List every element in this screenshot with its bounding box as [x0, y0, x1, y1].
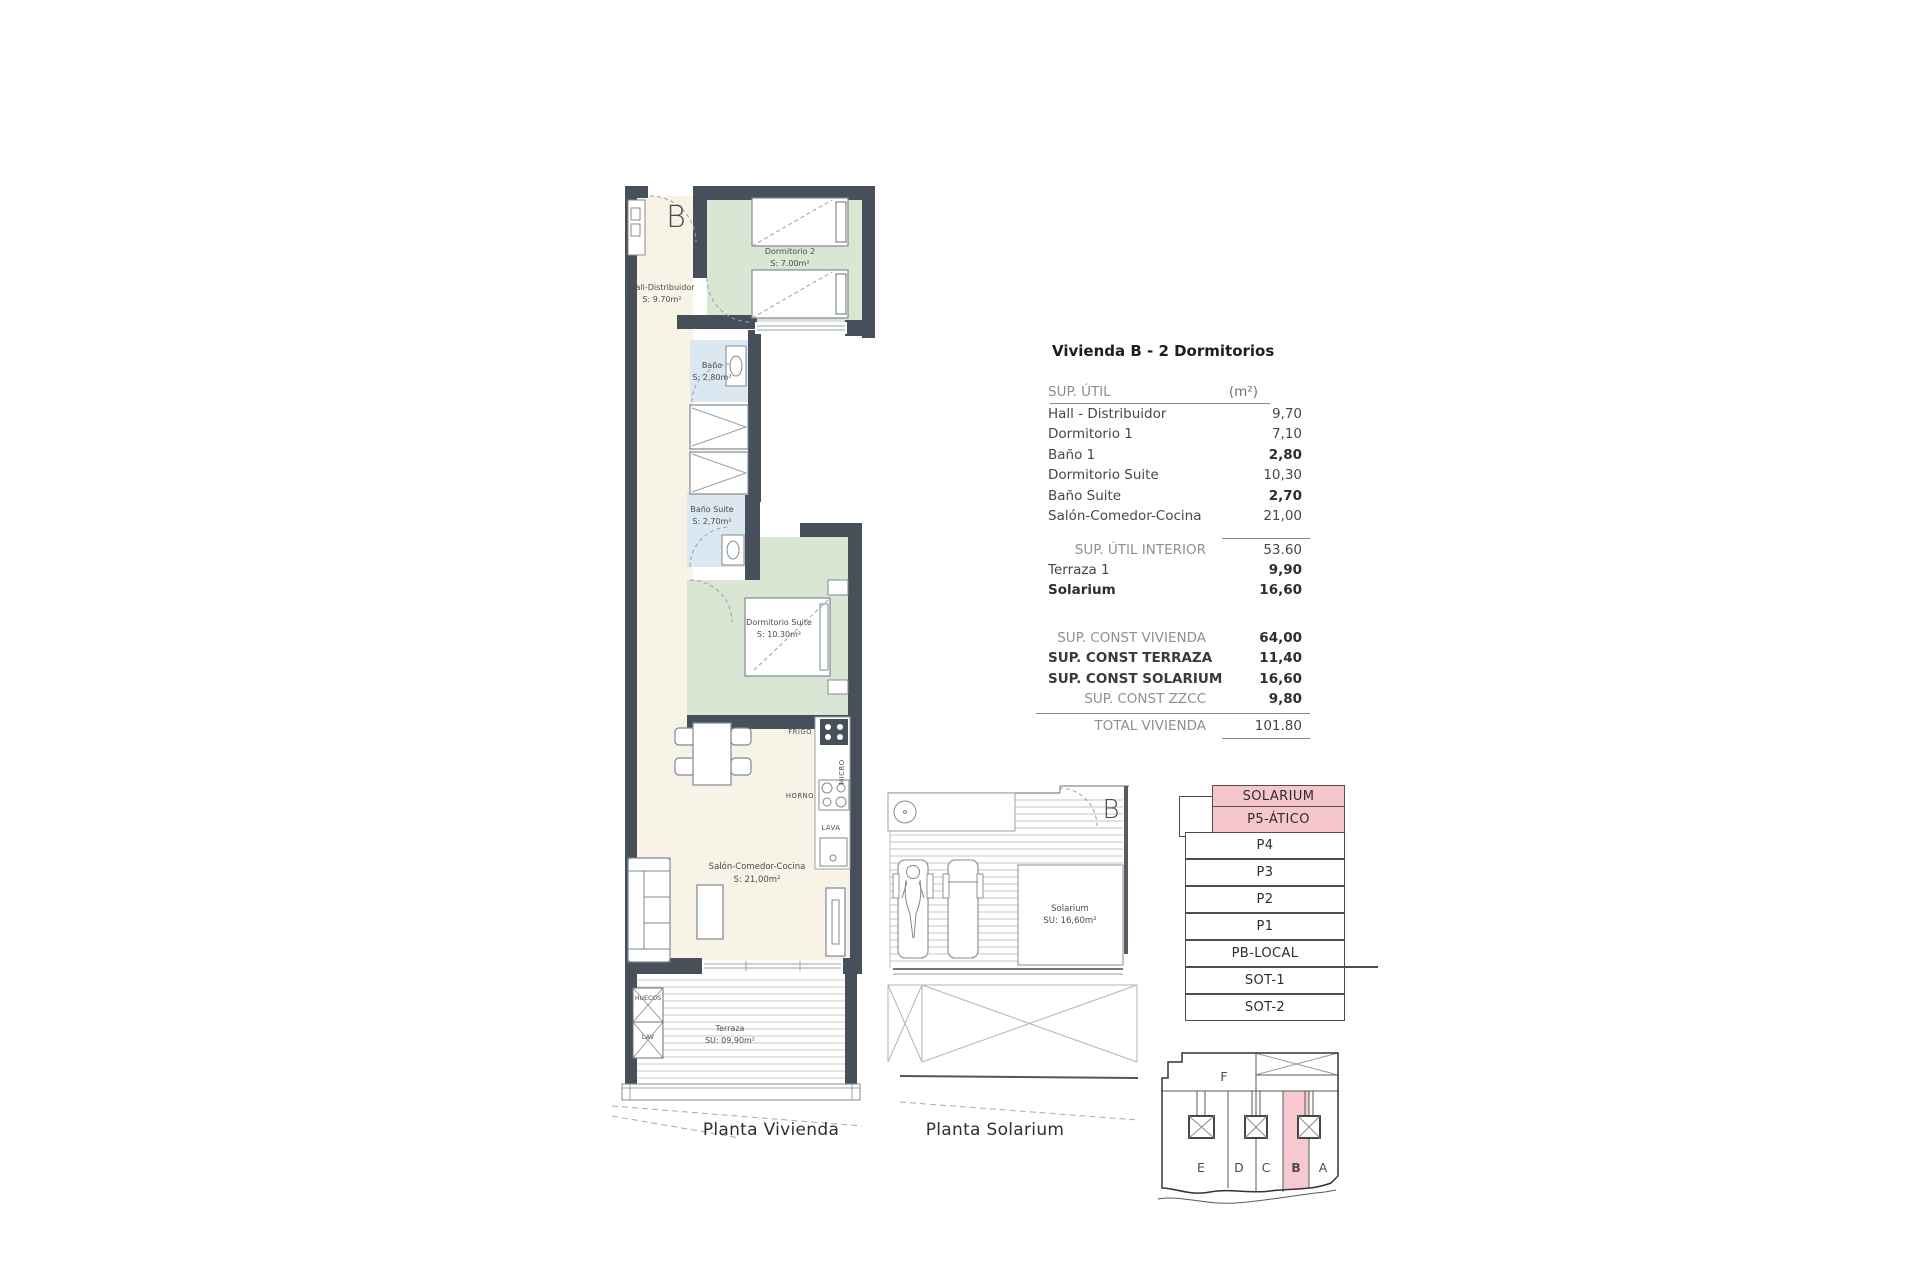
micro-label: MICRO	[838, 759, 846, 784]
stack-level-solarium: SOLARIUM	[1212, 785, 1345, 807]
stack-level-sot1: SOT-1	[1185, 967, 1345, 994]
bano-suite-area: S: 2,70m²	[692, 517, 731, 526]
area-table: Vivienda B - 2 Dormitorios SUP. ÚTIL (m²…	[1048, 340, 1310, 760]
tv-bench	[826, 888, 845, 956]
oven-label: HORNO	[786, 792, 814, 800]
washer-label: LAVA	[821, 824, 840, 832]
table-row: Dormitorio 1 7,10	[1048, 424, 1310, 444]
total-top-line	[1036, 713, 1310, 714]
total-underline	[1222, 738, 1310, 739]
table-header: SUP. ÚTIL (m²)	[1048, 382, 1310, 402]
salon-area: S: 21,00m²	[734, 875, 781, 885]
dorm-suite-label: Dormitorio Suite	[746, 618, 812, 627]
terrace-shafts: HUECOS LAV	[633, 988, 663, 1058]
stack-level-p4: P4	[1185, 832, 1345, 859]
unit-d-label: D	[1234, 1160, 1244, 1175]
terraza-label: Terraza	[715, 1024, 745, 1033]
solarium-room: Solarium SU: 16,60m²	[1018, 865, 1123, 965]
fridge-label: FRIGO	[788, 728, 812, 736]
round-table	[894, 801, 916, 823]
table-row: Baño Suite 2,70	[1048, 486, 1310, 506]
wardrobes	[690, 405, 748, 494]
stack-level-p5-atico: P5-ÁTICO	[1212, 806, 1345, 833]
unit-f-label: F	[1220, 1069, 1227, 1084]
solarium-area: SU: 16,60m²	[1043, 916, 1096, 926]
table-row: SUP. CONST VIVIENDA 64,00	[1048, 628, 1310, 648]
bano-area: S: 2,80m²	[692, 373, 731, 382]
table-row: Terraza 1 9,90	[1048, 560, 1310, 580]
floor-plan-caption: Planta Vivienda	[671, 1120, 871, 1140]
dorm-suite-area: S: 10.30m²	[757, 630, 801, 639]
sofa	[628, 858, 670, 962]
fridge	[820, 719, 848, 745]
subtotal-line	[1222, 538, 1310, 539]
unit-c-label: C	[1262, 1160, 1271, 1175]
table-row: SUP. CONST ZZCC 9,80	[1048, 689, 1310, 709]
unit-b-label: B	[1291, 1160, 1301, 1175]
kitchen-sink	[820, 838, 847, 866]
solarium-plan-drawing: Solarium SU: 16,60m² B	[880, 780, 1180, 1165]
terraza-area: SU: 09,90m²	[705, 1036, 755, 1045]
salon-label: Salón-Comedor-Cocina	[709, 861, 806, 872]
dorm2-area: S: 7.00m²	[770, 259, 809, 268]
pergola-area	[888, 793, 1015, 831]
table-row: Dormitorio Suite 10,30	[1048, 465, 1310, 485]
stack-level-sot2: SOT-2	[1185, 994, 1345, 1021]
table-row: Solarium 16,60	[1048, 580, 1310, 600]
building-stack-diagram: SOLARIUM P5-ÁTICO P4 P3 P2 P1 PB-LOCAL S…	[1172, 783, 1402, 1043]
unit-a-label: A	[1319, 1160, 1328, 1175]
solarium-unit-letter: B	[1102, 795, 1119, 825]
dorm2-label: Dormitorio 2	[765, 247, 815, 256]
plan-sheet: B	[0, 0, 1920, 1280]
footprint-key-plan: F E D C B A	[1150, 1045, 1400, 1235]
table-title: Vivienda B - 2 Dormitorios	[1052, 342, 1274, 360]
solarium-label: Solarium	[1051, 904, 1089, 914]
stack-level-pb-local: PB-LOCAL	[1185, 940, 1345, 967]
table-row: SUP. ÚTIL INTERIOR 53.60	[1048, 540, 1310, 560]
bano-suite-label: Baño Suite	[690, 505, 733, 514]
coffee-table	[697, 885, 723, 939]
solarium-plan-caption: Planta Solarium	[895, 1120, 1095, 1140]
stack-level-p3: P3	[1185, 859, 1345, 886]
stack-level-p1: P1	[1185, 913, 1345, 940]
table-row: Hall - Distribuidor 9,70	[1048, 404, 1310, 424]
dorm2-window	[755, 322, 847, 334]
header-label: SUP. ÚTIL	[1048, 384, 1170, 400]
bano-label: Baño	[702, 361, 722, 370]
stack-level-p2: P2	[1185, 886, 1345, 913]
stack-side-box	[1179, 796, 1213, 837]
laundry-label: LAV	[642, 1033, 655, 1041]
solarium-lower-structure	[888, 969, 1138, 1120]
unit-e-label: E	[1197, 1160, 1205, 1175]
unit-letter-label: B	[666, 200, 686, 235]
table-row: SUP. CONST TERRAZA 11,40	[1048, 648, 1310, 668]
floor-plan-drawing: B	[600, 180, 900, 1165]
hall-label: Hall-Distribuidor	[629, 283, 695, 292]
cores	[1189, 1116, 1320, 1138]
table-row: TOTAL VIVIENDA 101.80	[1048, 716, 1310, 736]
table-row: SUP. CONST SOLARIUM 16,60	[1048, 669, 1310, 689]
hall-area: S: 9.70m²	[642, 295, 681, 304]
table-row: Salón-Comedor-Cocina 21,00	[1048, 506, 1310, 526]
sun-loungers	[893, 860, 983, 958]
header-unit: (m²)	[1170, 384, 1310, 400]
shaft-label: HUECOS	[635, 995, 661, 1002]
table-row: Baño 1 2,80	[1048, 445, 1310, 465]
salon-window	[702, 960, 843, 972]
